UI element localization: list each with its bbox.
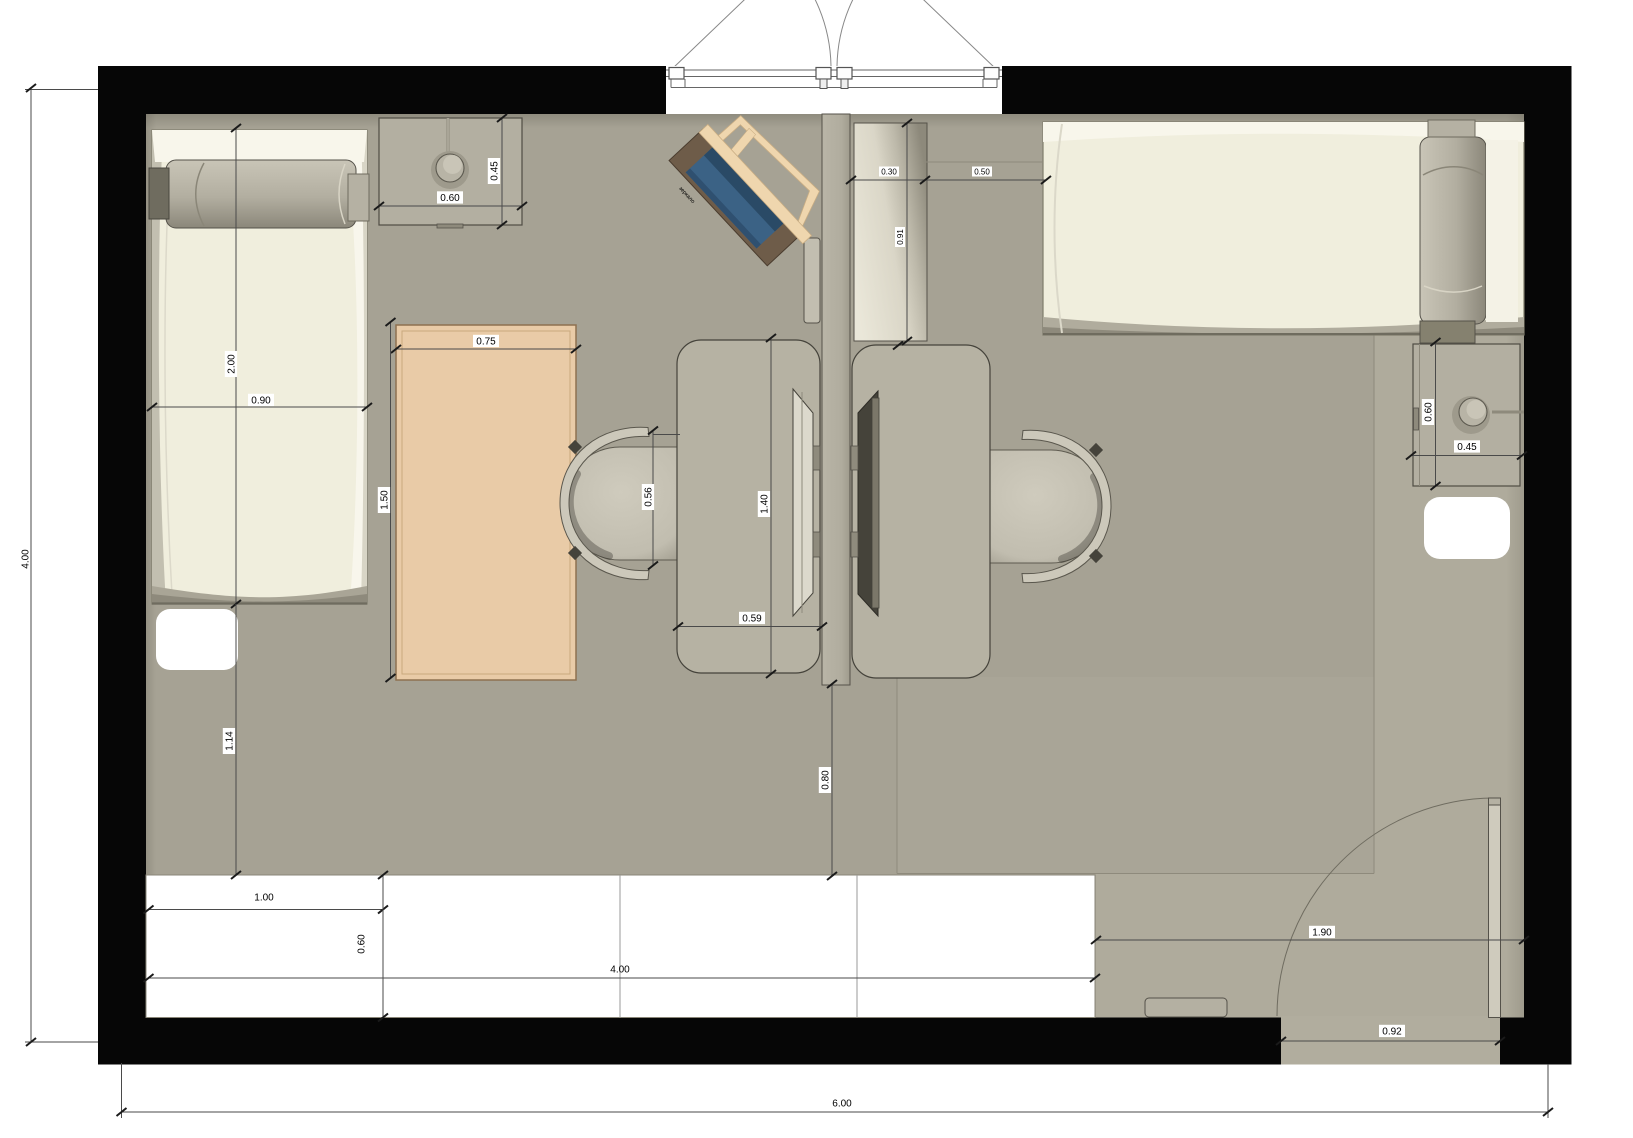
svg-text:0.45: 0.45 [1457,442,1477,453]
svg-text:0.80: 0.80 [821,770,832,790]
svg-text:0.75: 0.75 [476,337,496,348]
svg-text:4.00: 4.00 [610,965,630,976]
svg-text:0.91: 0.91 [896,229,905,245]
svg-text:1.90: 1.90 [1312,928,1332,939]
svg-text:1.40: 1.40 [760,494,771,514]
svg-text:0.45: 0.45 [490,161,501,181]
svg-text:0.50: 0.50 [974,167,990,176]
svg-text:0.60: 0.60 [357,934,368,954]
svg-text:0.30: 0.30 [881,167,897,176]
svg-text:0.90: 0.90 [251,396,271,407]
svg-text:0.92: 0.92 [1382,1027,1402,1038]
svg-text:6.00: 6.00 [832,1099,852,1110]
svg-text:1.14: 1.14 [225,731,236,751]
svg-text:0.59: 0.59 [742,614,762,625]
svg-text:0.60: 0.60 [1424,402,1435,422]
svg-text:0.60: 0.60 [440,193,460,204]
svg-text:2.00: 2.00 [227,354,238,374]
svg-text:0.56: 0.56 [644,487,655,507]
svg-text:1.50: 1.50 [380,490,391,510]
svg-text:1.00: 1.00 [254,893,274,904]
svg-text:4.00: 4.00 [21,549,32,569]
